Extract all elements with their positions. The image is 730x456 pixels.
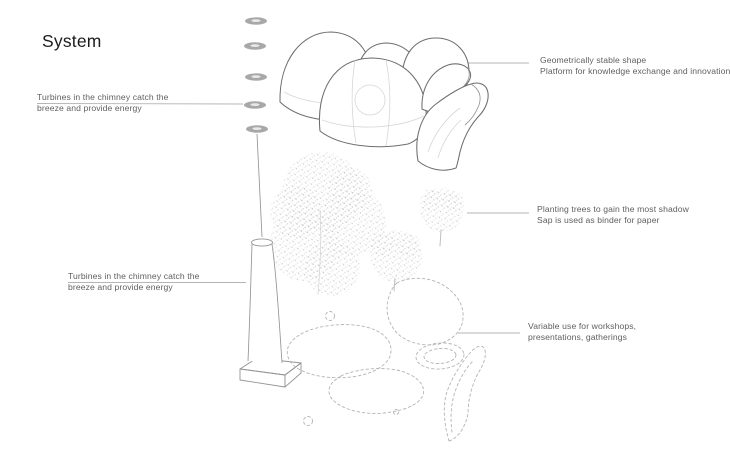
turbine-axis-line xyxy=(257,134,262,237)
annotation-turbines-top: Turbines in the chimney catch the breeze… xyxy=(37,92,168,115)
tree-large xyxy=(269,152,386,296)
dome-cluster-drawing xyxy=(280,32,488,170)
dashed-footprint xyxy=(287,278,485,441)
turbine-disk xyxy=(244,42,266,49)
annotation-turbines-bottom: Turbines in the chimney catch the breeze… xyxy=(68,271,199,294)
annotation-variable-use: Variable use for workshops, presentation… xyxy=(528,321,636,344)
tree-illustration xyxy=(269,152,464,296)
annotation-line: presentations, gatherings xyxy=(528,332,636,343)
tree-medium xyxy=(370,230,422,291)
turbine-disk xyxy=(245,17,267,24)
diagram-canvas: System Turbines in the chimney catch the… xyxy=(0,0,730,456)
chimney-opening xyxy=(252,239,273,246)
turbine-disk xyxy=(245,73,267,80)
footprint-ellipse xyxy=(415,341,465,370)
page-title: System xyxy=(42,31,102,52)
turbine-disk xyxy=(246,125,268,132)
annotation-line: Sap is used as binder for paper xyxy=(537,215,689,226)
footprint-blob-left xyxy=(287,325,391,378)
chimney-base xyxy=(240,358,301,387)
annotation-line: Platform for knowledge exchange and inno… xyxy=(540,66,730,77)
annotation-line: Turbines in the chimney catch the xyxy=(68,271,199,282)
annotation-planting: Planting trees to gain the most shadow S… xyxy=(537,204,689,227)
annotation-line: Planting trees to gain the most shadow xyxy=(537,204,689,215)
annotation-line: Variable use for workshops, xyxy=(528,321,636,332)
footprint-dot xyxy=(304,417,313,426)
annotation-line: breeze and provide energy xyxy=(68,282,199,293)
turbine-disks xyxy=(244,17,268,237)
tree-small xyxy=(420,188,464,246)
annotation-line: breeze and provide energy xyxy=(37,103,168,114)
footprint-blob-top xyxy=(387,278,463,345)
footprint-shell-dashed xyxy=(444,346,485,441)
footprint-dot xyxy=(394,410,399,415)
annotation-line: Geometrically stable shape xyxy=(540,55,730,66)
footprint-blob-bottom xyxy=(329,369,424,414)
annotation-line: Turbines in the chimney catch the xyxy=(37,92,168,103)
annotation-geometry: Geometrically stable shape Platform for … xyxy=(540,55,730,78)
turbine-disk xyxy=(244,101,266,108)
footprint-dot xyxy=(326,312,335,321)
